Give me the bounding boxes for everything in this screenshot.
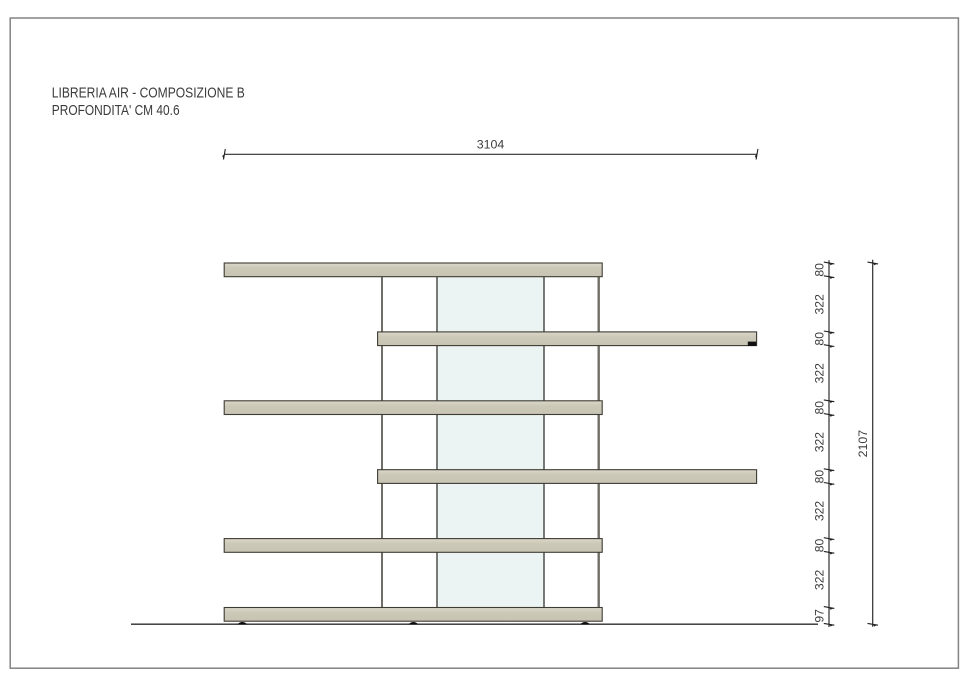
- svg-text:322: 322: [813, 294, 827, 315]
- svg-text:322: 322: [813, 363, 827, 384]
- svg-text:3104: 3104: [477, 137, 505, 151]
- svg-text:2107: 2107: [856, 430, 870, 458]
- svg-text:80: 80: [813, 332, 827, 346]
- svg-text:80: 80: [813, 539, 827, 553]
- svg-text:80: 80: [813, 470, 827, 484]
- svg-text:80: 80: [813, 401, 827, 415]
- svg-text:322: 322: [813, 570, 827, 591]
- svg-text:PROFONDITA' CM 40.6: PROFONDITA' CM 40.6: [52, 103, 180, 119]
- svg-text:322: 322: [813, 432, 827, 453]
- svg-text:322: 322: [813, 501, 827, 522]
- svg-text:LIBRERIA AIR - COMPOSIZIONE B: LIBRERIA AIR - COMPOSIZIONE B: [52, 85, 245, 101]
- svg-text:97: 97: [813, 609, 827, 623]
- svg-text:80: 80: [813, 263, 827, 277]
